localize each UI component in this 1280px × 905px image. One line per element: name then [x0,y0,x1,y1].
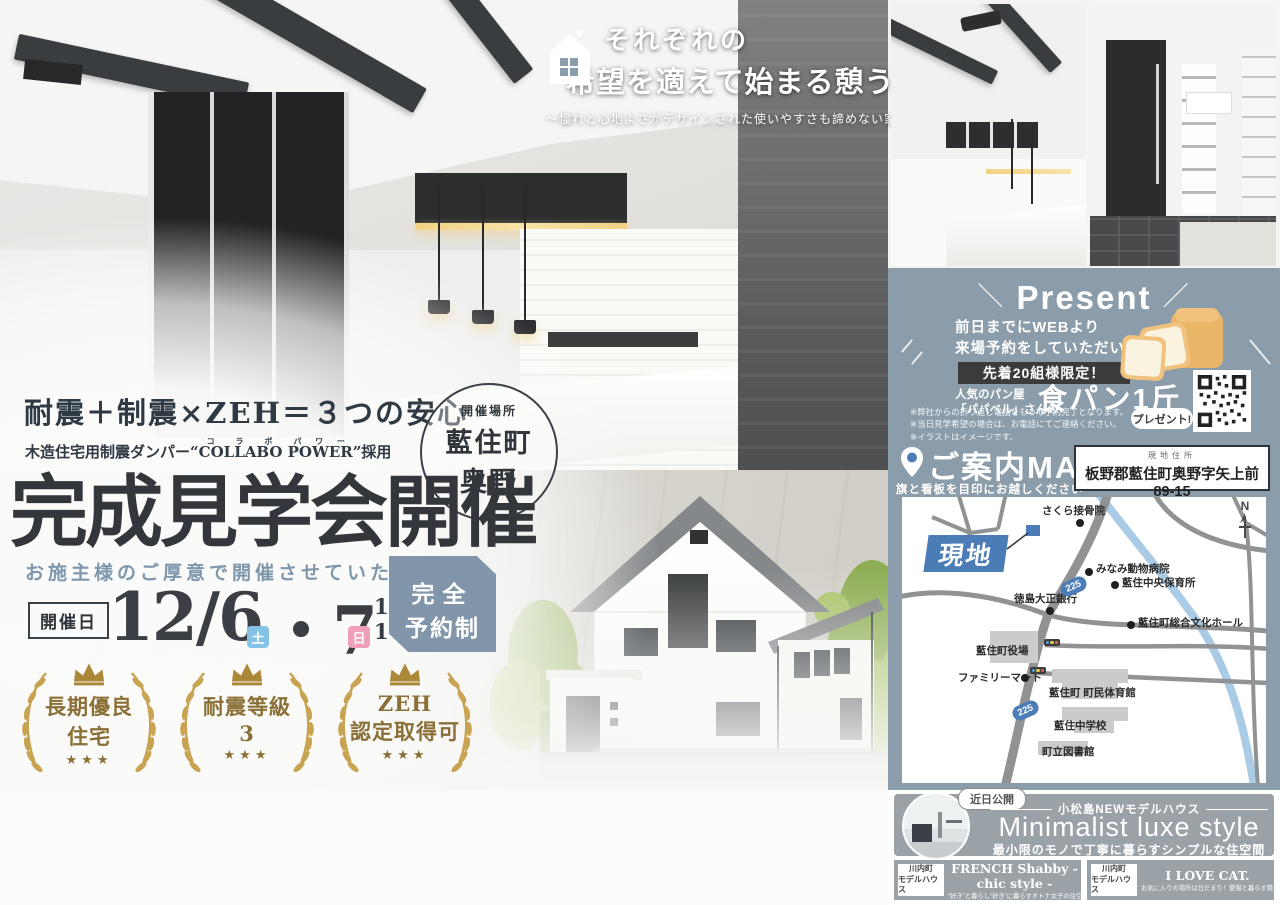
pendant-cord [482,185,484,311]
model-house-card-cat: 川内町モデルハウス I LOVE CAT.お気に入りの場所は日だまり！愛猫と暮ら… [1087,860,1274,900]
crown-icon [387,662,423,686]
map-pin-icon [900,446,924,478]
flyer-root: それぞれの 希望を適えて始まる憩う暮らし 〜憧れと心地よさがデザインされた使いや… [0,0,1280,905]
tag-town: 川内町 [909,864,933,874]
badge-zeh: ZEH 認定取得可 ★★★ [330,660,480,788]
model-tag: 川内町モデルハウス [898,864,944,896]
card-title: FRENCH Shabby - chic style - [948,861,1081,891]
card-title: I LOVE CAT. [1141,868,1274,883]
pendant-cord [524,185,526,321]
house-icon [546,28,594,86]
landmark-label: 藍住中学校 [1054,718,1107,733]
note-1: ※弊社からの折り返し電話をもって予約完了となります。 [910,406,1128,418]
tag-town: 川内町 [1102,864,1126,874]
hero-catch-copy: それぞれの 希望を適えて始まる憩う暮らし 〜憧れと心地よさがデザインされた使いや… [546,20,906,127]
pendant-lamp [514,320,536,334]
present-notes: ※弊社からの折り返し電話をもって予約完了となります。 ※当日見学希望の場合は、お… [910,406,1128,440]
model-house-main-card: 近日公開 小松島NEWモデルハウス Minimalist luxe style … [894,794,1274,856]
photo-vaulted-ceiling [891,4,1086,266]
sunday-chip: 日 [348,626,370,648]
model-tag: 川内町モデルハウス [1091,864,1137,896]
venue-label: 開催場所 [422,402,556,419]
catch-line2: 希望を適えて始まる憩う暮らし [566,59,906,101]
laurel-icon [442,668,478,774]
traffic-signal-icon [1030,667,1046,674]
ceiling-beam [891,18,998,84]
traffic-signal-icon [1044,639,1060,646]
sliding-doors [148,92,349,437]
present-bubble: プレゼント! [1131,408,1193,429]
slot-window [548,332,698,347]
event-title: 完成見学会開催 [10,450,535,562]
note-2: ※当日見学希望の場合は、お電話にてご連絡ください。 [910,418,1128,430]
safety-formula: 耐震＋制震×ZEH＝３つの安心 [24,390,468,432]
damper-furigana1: コラボ [199,436,283,446]
card-subtitle: “好き”と暮らし“好き”に暮らすオトナ女子の住空間 [948,891,1081,900]
ceiling-fan-icon [960,10,1002,32]
landmark-label: 藍住町 町民体育館 [1049,685,1136,700]
pendant-lamp [472,310,494,324]
saturday-chip: 土 [247,626,269,648]
door-handle [1156,64,1159,184]
crown-icon [71,662,107,686]
model-house-subtitle: 最小限のモノで丁寧に暮らすシンプルな住空間 [990,841,1268,858]
site-marker: 現地 [923,535,1008,572]
under-cabinet-light [986,169,1071,174]
house-exterior-photo [540,470,888,790]
laurel-icon [174,668,210,774]
shelf-unit [1242,54,1276,216]
tag-type: モデルハウス [1091,875,1137,896]
pendant-cord [438,185,440,301]
laurel-icon [332,668,368,774]
pendant-cord [1011,119,1013,189]
company-footer: Smile Builder 家族の笑顔を守る住まいづくり Let's make … [0,790,888,905]
qr-code [1193,370,1251,432]
hall-floor [1180,222,1276,266]
slash-left: ＼ [977,281,1005,311]
landmark-label: 藍住町総合文化ホール [1138,615,1243,630]
model-house-title: Minimalist luxe style [990,812,1268,843]
north-arrow-icon [1238,513,1252,539]
photo-entrance-hall [1090,4,1276,266]
landmark-label: 藍住町役場 [976,643,1029,658]
wall-niche [1186,92,1232,114]
landmark-label: みなみ動物病院 [1096,561,1170,576]
pendant-lamp [428,300,450,314]
catch-line1: それぞれの [604,20,906,57]
date-label: 開催日 [28,602,109,639]
certification-badges: 長期優良 住宅 ★★★ 耐震等級 3 ★★★ ZEH 認定取得可 ★★★ [14,660,494,788]
laurel-icon [16,668,52,774]
reservation-line1: 完全 [389,575,496,609]
date-number: 12/6 [108,578,262,656]
north-label: N [1238,499,1252,513]
pendant-cord [1031,129,1033,204]
card-subtitle: お気に入りの場所は日だまり！愛猫と暮らす陽光に包まれた家 [1141,883,1274,892]
landmark-label: 藍住中央保育所 [1122,575,1196,590]
note-3: ※イラストはイメージです。 [910,431,1128,440]
map-subtitle: 旗と看板を目印にお越しください [896,481,1084,497]
map-canvas: 現地 さくら接骨院 みなみ動物病院 藍住中央保育所 徳島大正銀行 藍住町総合文化… [902,497,1266,783]
present-panel: ＼ Present ／ 前日までにWEBより 来場予約をしていただいた方には 先… [888,268,1280,440]
north-compass: N [1238,499,1252,542]
site-address-label: 現地住所 [1076,450,1268,461]
damper-furigana2: パワー [288,436,353,446]
model-house-card-french: 川内町モデルハウス FRENCH Shabby - chic style -“好… [894,860,1081,900]
catch-subline: 〜憧れと心地よさがデザインされた使いやすさも諦めない家〜 [546,110,906,127]
landmark-label: さくら接骨院 [1042,503,1105,518]
clerestory-window [946,122,1038,148]
landmark-label: 町立図書館 [1042,744,1095,759]
laurel-icon [126,668,162,774]
reservation-badge: 完全 予約制 [389,556,496,652]
badge-seismic-grade: 耐震等級 3 ★★★ [172,660,322,788]
crown-icon [229,662,265,686]
kitchen-soffit [415,173,627,223]
closet-shelves [1182,64,1216,214]
site-address: 板野郡藍住町奥野字矢上前89-15 [1076,463,1268,500]
laurel-icon [284,668,320,774]
tag-type: モデルハウス [898,875,944,896]
site-address-box: 現地住所 板野郡藍住町奥野字矢上前89-15 [1074,445,1270,491]
model-houses-section: 近日公開 小松島NEWモデルハウス Minimalist luxe style … [888,790,1280,905]
badge-long-term-quality: 長期優良 住宅 ★★★ [14,660,164,788]
reservation-line2: 予約制 [389,609,496,643]
map-panel: ご案内MAP 旗と看板を目印にお越しください 現地住所 板野郡藍住町奥野字矢上前… [888,440,1280,790]
